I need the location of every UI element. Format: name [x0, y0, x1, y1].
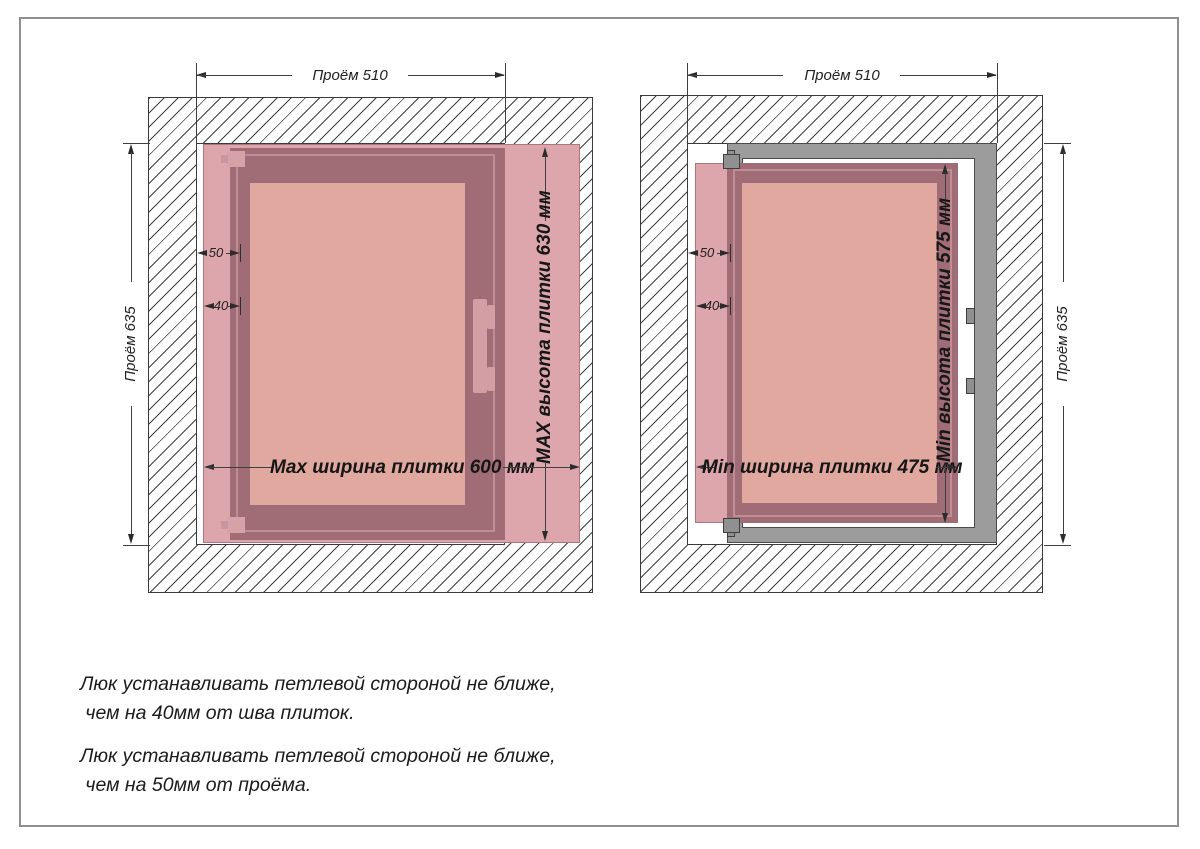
hinge-top-pin: [727, 150, 735, 155]
opening-width-label: Проём 510: [290, 67, 410, 85]
dim-line: [206, 467, 274, 468]
dim-line: [900, 75, 996, 76]
dim-line: [408, 75, 504, 76]
note-line: чем на 40мм от шва плиток.: [80, 699, 355, 728]
dim-line: [131, 152, 132, 282]
dim-line: [1063, 406, 1064, 536]
dim-line: [945, 464, 946, 514]
hinge-top: [227, 151, 245, 167]
dim-line: [197, 75, 292, 76]
dim-tick: [240, 244, 241, 262]
dim-extension: [123, 545, 150, 546]
tile-width-label: Max ширина плитки 600 мм: [270, 457, 510, 479]
tile-width-label: Min ширина плитки 475 мм: [702, 457, 942, 479]
hinge-bottom-pin: [727, 532, 735, 537]
tile-height-label: Min высота плитки 575 мм: [934, 222, 956, 462]
note-line: чем на 50мм от проёма.: [80, 771, 311, 800]
dim-line: [131, 406, 132, 536]
dim-extension: [1044, 545, 1071, 546]
note-line: Люк устанавливать петлевой стороной не б…: [80, 670, 556, 699]
dim-arrow-right: [987, 72, 997, 78]
dim-arrow-right: [495, 72, 505, 78]
opening-width-label: Проём 510: [782, 67, 902, 85]
hinge-bottom: [227, 517, 245, 533]
dim-arrow-right: [570, 464, 580, 470]
dim-arrow-down: [542, 531, 548, 541]
door-panel: [742, 183, 937, 503]
dim-tick: [240, 297, 241, 315]
tile-height-label: MAX высота плитки 630 мм: [534, 224, 556, 464]
dim-arrow-down: [128, 534, 134, 544]
hinge-bottom-pin: [221, 521, 228, 529]
dim-arrow-down: [942, 513, 948, 523]
dim-arrow-right: [230, 303, 240, 309]
dim-tick: [730, 297, 731, 315]
dim-line: [545, 462, 546, 532]
dim-line: [688, 75, 783, 76]
handle-tab-top: [487, 305, 495, 329]
opening-height-label: Проём 635: [122, 284, 140, 404]
dim-arrow-right: [230, 250, 240, 256]
dim-arrow-right: [948, 464, 958, 470]
dim-extension: [505, 63, 506, 143]
drawing-page: Проём 510 Проём 635 50 40 Max ширина пли…: [0, 0, 1200, 849]
hinge-bottom: [723, 518, 740, 533]
handle-tab-bottom: [487, 367, 495, 391]
dim-line: [1063, 152, 1064, 282]
opening-height-label: Проём 635: [1054, 284, 1072, 404]
handle-tab-top: [966, 308, 975, 324]
dim-extension: [997, 63, 998, 143]
dim-arrow-right: [720, 250, 730, 256]
hinge-offset-50-label: 50: [205, 245, 227, 261]
hinge-top-pin: [221, 155, 228, 163]
dim-arrow-right: [720, 303, 730, 309]
note-line: Люк устанавливать петлевой стороной не б…: [80, 742, 556, 771]
hinge-offset-50-label: 50: [696, 245, 718, 261]
dim-extension: [1044, 143, 1071, 144]
handle: [473, 299, 487, 393]
dim-tick: [730, 244, 731, 262]
dim-arrow-down: [1060, 534, 1066, 544]
dim-line: [503, 467, 570, 468]
hinge-top: [723, 154, 740, 169]
handle-tab-bottom: [966, 378, 975, 394]
